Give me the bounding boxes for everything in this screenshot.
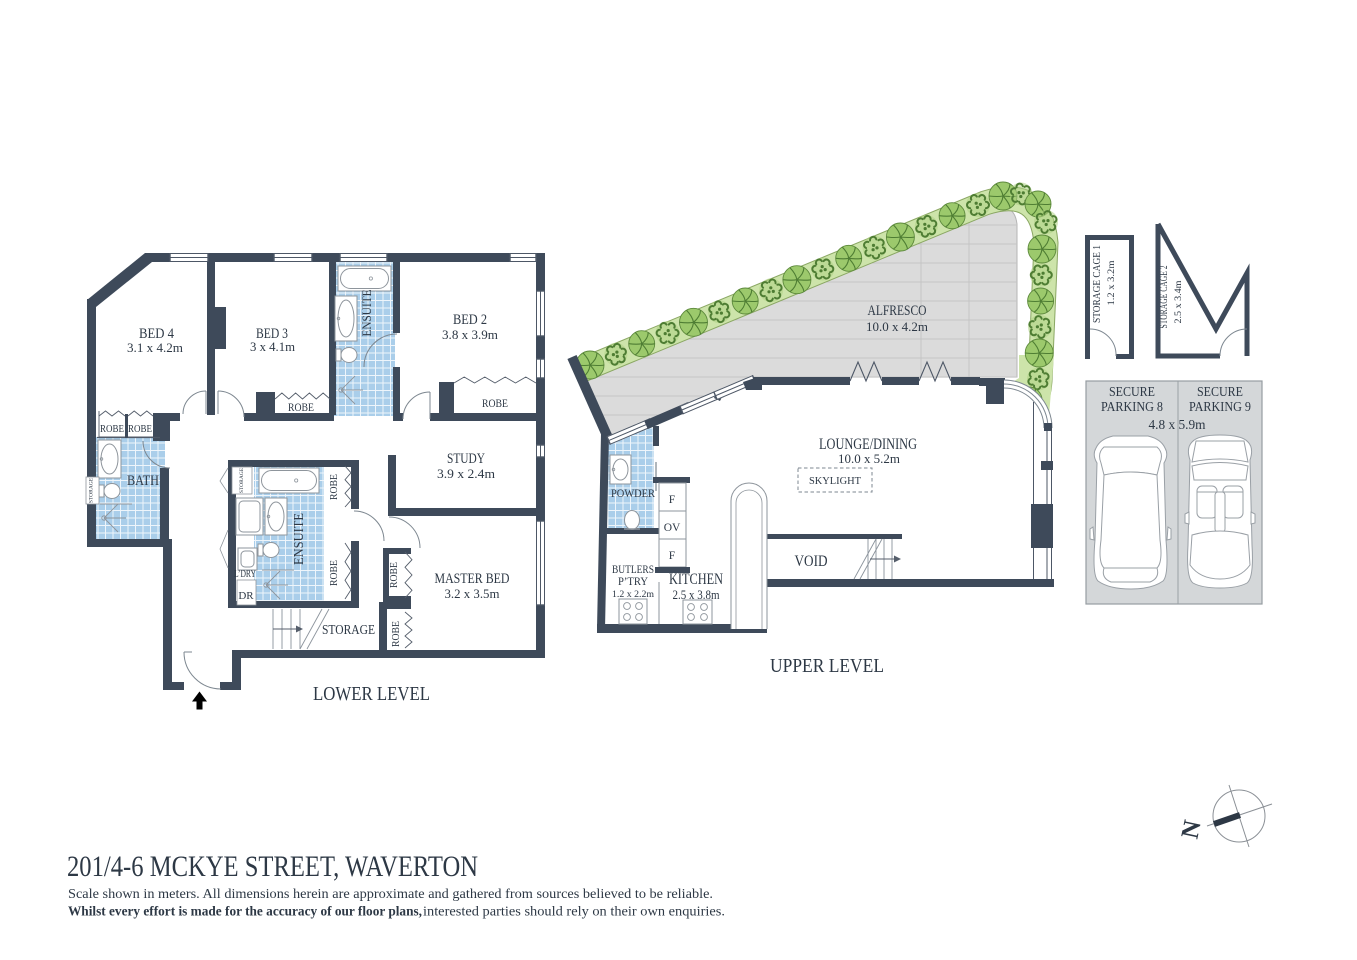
svg-text:3.2 x 3.5m: 3.2 x 3.5m <box>445 586 500 601</box>
svg-text:201/4-6 MCKYE STREET, WAVERTON: 201/4-6 MCKYE STREET, WAVERTON <box>67 850 478 883</box>
svg-text:POWDER: POWDER <box>611 488 655 500</box>
svg-text:4.8 x 5.9m: 4.8 x 5.9m <box>1149 418 1206 433</box>
svg-text:3.8 x 3.9m: 3.8 x 3.9m <box>442 327 498 342</box>
svg-text:10.0 x 5.2m: 10.0 x 5.2m <box>838 451 900 466</box>
svg-text:L’DRY: L’DRY <box>234 569 256 580</box>
svg-text:Whilst every effort is made fo: Whilst every effort is made for the accu… <box>68 904 422 919</box>
svg-text:DR: DR <box>238 590 254 602</box>
svg-text:ROBE: ROBE <box>329 474 340 500</box>
svg-text:interested parties should rely: interested parties should rely on their … <box>423 904 725 919</box>
svg-text:ENSUITE: ENSUITE <box>291 513 306 565</box>
svg-text:ROBE: ROBE <box>128 423 152 435</box>
svg-text:Scale shown in meters. All dim: Scale shown in meters. All dimensions he… <box>68 886 713 901</box>
svg-text:PARKING 8: PARKING 8 <box>1101 399 1163 414</box>
svg-text:2.5 x 3.8m: 2.5 x 3.8m <box>673 587 720 602</box>
svg-text:SKYLIGHT: SKYLIGHT <box>809 476 862 487</box>
svg-text:ROBE: ROBE <box>391 621 402 647</box>
svg-text:3.9 x 2.4m: 3.9 x 2.4m <box>437 466 495 481</box>
svg-text:2.5 x 3.4m: 2.5 x 3.4m <box>1174 280 1184 324</box>
svg-text:MASTER BED: MASTER BED <box>435 571 510 587</box>
svg-text:KITCHEN: KITCHEN <box>669 571 723 588</box>
svg-text:BATH: BATH <box>127 473 159 489</box>
svg-text:ALFRESCO: ALFRESCO <box>868 303 927 319</box>
svg-text:P’TRY: P’TRY <box>618 576 649 588</box>
svg-text:UPPER LEVEL: UPPER LEVEL <box>770 655 884 677</box>
svg-text:STORAGE CAGE 2: STORAGE CAGE 2 <box>1159 266 1170 329</box>
svg-text:VOID: VOID <box>795 553 828 570</box>
svg-text:ENSUITE: ENSUITE <box>360 289 374 336</box>
svg-text:3 x 4.1m: 3 x 4.1m <box>250 339 295 354</box>
svg-text:SECURE: SECURE <box>1197 384 1243 399</box>
svg-text:3.1 x 4.2m: 3.1 x 4.2m <box>127 340 183 355</box>
svg-text:STORAGE: STORAGE <box>89 477 95 503</box>
svg-text:1.2 x 3.2m: 1.2 x 3.2m <box>1107 260 1117 306</box>
svg-text:ROBE: ROBE <box>288 400 314 414</box>
svg-text:PARKING 9: PARKING 9 <box>1189 399 1251 414</box>
svg-text:ROBE: ROBE <box>389 562 400 588</box>
svg-text:F: F <box>669 550 675 562</box>
svg-text:1.2 x 2.2m: 1.2 x 2.2m <box>612 590 655 600</box>
svg-text:ROBE: ROBE <box>329 560 340 586</box>
svg-text:STUDY: STUDY <box>447 451 485 467</box>
svg-text:10.0 x 4.2m: 10.0 x 4.2m <box>866 319 928 334</box>
svg-text:STORAGE: STORAGE <box>322 622 375 637</box>
svg-text:OV: OV <box>664 522 681 534</box>
svg-text:F: F <box>669 494 675 506</box>
svg-text:SECURE: SECURE <box>1109 384 1155 399</box>
svg-text:BUTLERS: BUTLERS <box>612 564 654 576</box>
svg-text:LOWER LEVEL: LOWER LEVEL <box>313 683 430 705</box>
svg-text:BED 2: BED 2 <box>453 312 487 328</box>
svg-text:STORAGE: STORAGE <box>239 467 245 493</box>
svg-text:ROBE: ROBE <box>100 423 124 435</box>
svg-text:ROBE: ROBE <box>482 396 508 410</box>
svg-text:STORAGE CAGE 1: STORAGE CAGE 1 <box>1092 245 1103 323</box>
